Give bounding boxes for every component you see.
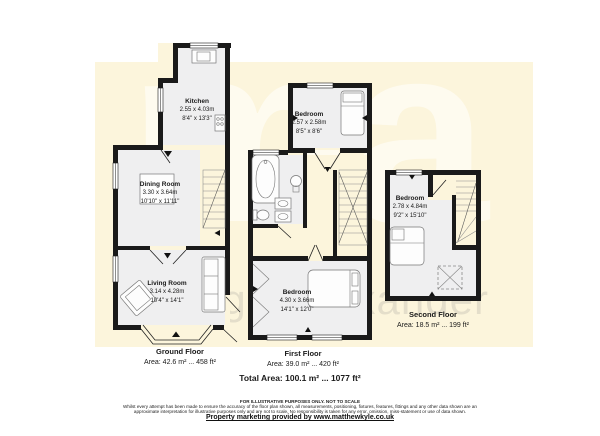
bathtub <box>252 155 279 203</box>
floorplan-page: ma morganalexander <box>0 0 600 436</box>
room-metric: 2.55 x 4.03m <box>159 106 235 115</box>
second-floor-plan <box>382 167 484 304</box>
room-name: Dining Room <box>120 180 200 189</box>
room-imperial: 10'10" x 11'11" <box>120 198 200 207</box>
bed-second <box>390 227 424 265</box>
room-name: Bedroom <box>370 194 450 203</box>
room-name: Bedroom <box>269 110 349 119</box>
room-metric: 2.57 x 2.58m <box>269 119 349 128</box>
room-imperial: 8'4" x 13'3" <box>159 115 235 124</box>
room-metric: 3.14 x 4.28m <box>127 288 207 297</box>
marketing-credit-link[interactable]: Property marketing provided by www.matth… <box>150 414 450 421</box>
room-name: Bedroom <box>257 288 337 297</box>
toilet <box>253 210 269 220</box>
dining-room-label: Dining Room 3.30 x 3.64m 10'10" x 11'11" <box>120 180 200 207</box>
bedroom-top-label: Bedroom 2.57 x 2.58m 8'5" x 8'6" <box>269 110 349 137</box>
room-imperial: 8'5" x 8'6" <box>269 128 349 137</box>
floor-area: Area: 39.0 m² ... 420 ft² <box>228 360 378 371</box>
room-metric: 3.30 x 3.64m <box>120 189 200 198</box>
room-imperial: 9'2" x 15'10" <box>370 212 450 221</box>
room-metric: 4.30 x 3.66m <box>257 297 337 306</box>
second-floor-label: Second Floor Area: 18.5 m² ... 199 ft² <box>358 309 508 332</box>
living-room-label: Living Room 3.14 x 4.28m 10'4" x 14'1" <box>127 279 207 306</box>
kitchen-sink-unit <box>192 50 216 63</box>
first-floor-label: First Floor Area: 39.0 m² ... 420 ft² <box>228 348 378 371</box>
second-windows <box>396 170 422 175</box>
room-imperial: 14'1" x 12'0" <box>257 306 337 315</box>
room-name: Living Room <box>127 279 207 288</box>
room-metric: 2.78 x 4.84m <box>370 203 450 212</box>
room-imperial: 10'4" x 14'1" <box>127 297 207 306</box>
floor-name: Second Floor <box>358 309 508 321</box>
floor-name: First Floor <box>228 348 378 360</box>
total-area-label: Total Area: 100.1 m² ... 1077 ft² <box>150 373 450 383</box>
bedroom-main-label: Bedroom 4.30 x 3.66m 14'1" x 12'0" <box>257 288 337 315</box>
bedroom-second-label: Bedroom 2.78 x 4.84m 9'2" x 15'10" <box>370 194 450 221</box>
kitchen-label: Kitchen 2.55 x 4.03m 8'4" x 13'3" <box>159 97 235 124</box>
room-name: Kitchen <box>159 97 235 106</box>
floor-area: Area: 18.5 m² ... 199 ft² <box>358 321 508 332</box>
